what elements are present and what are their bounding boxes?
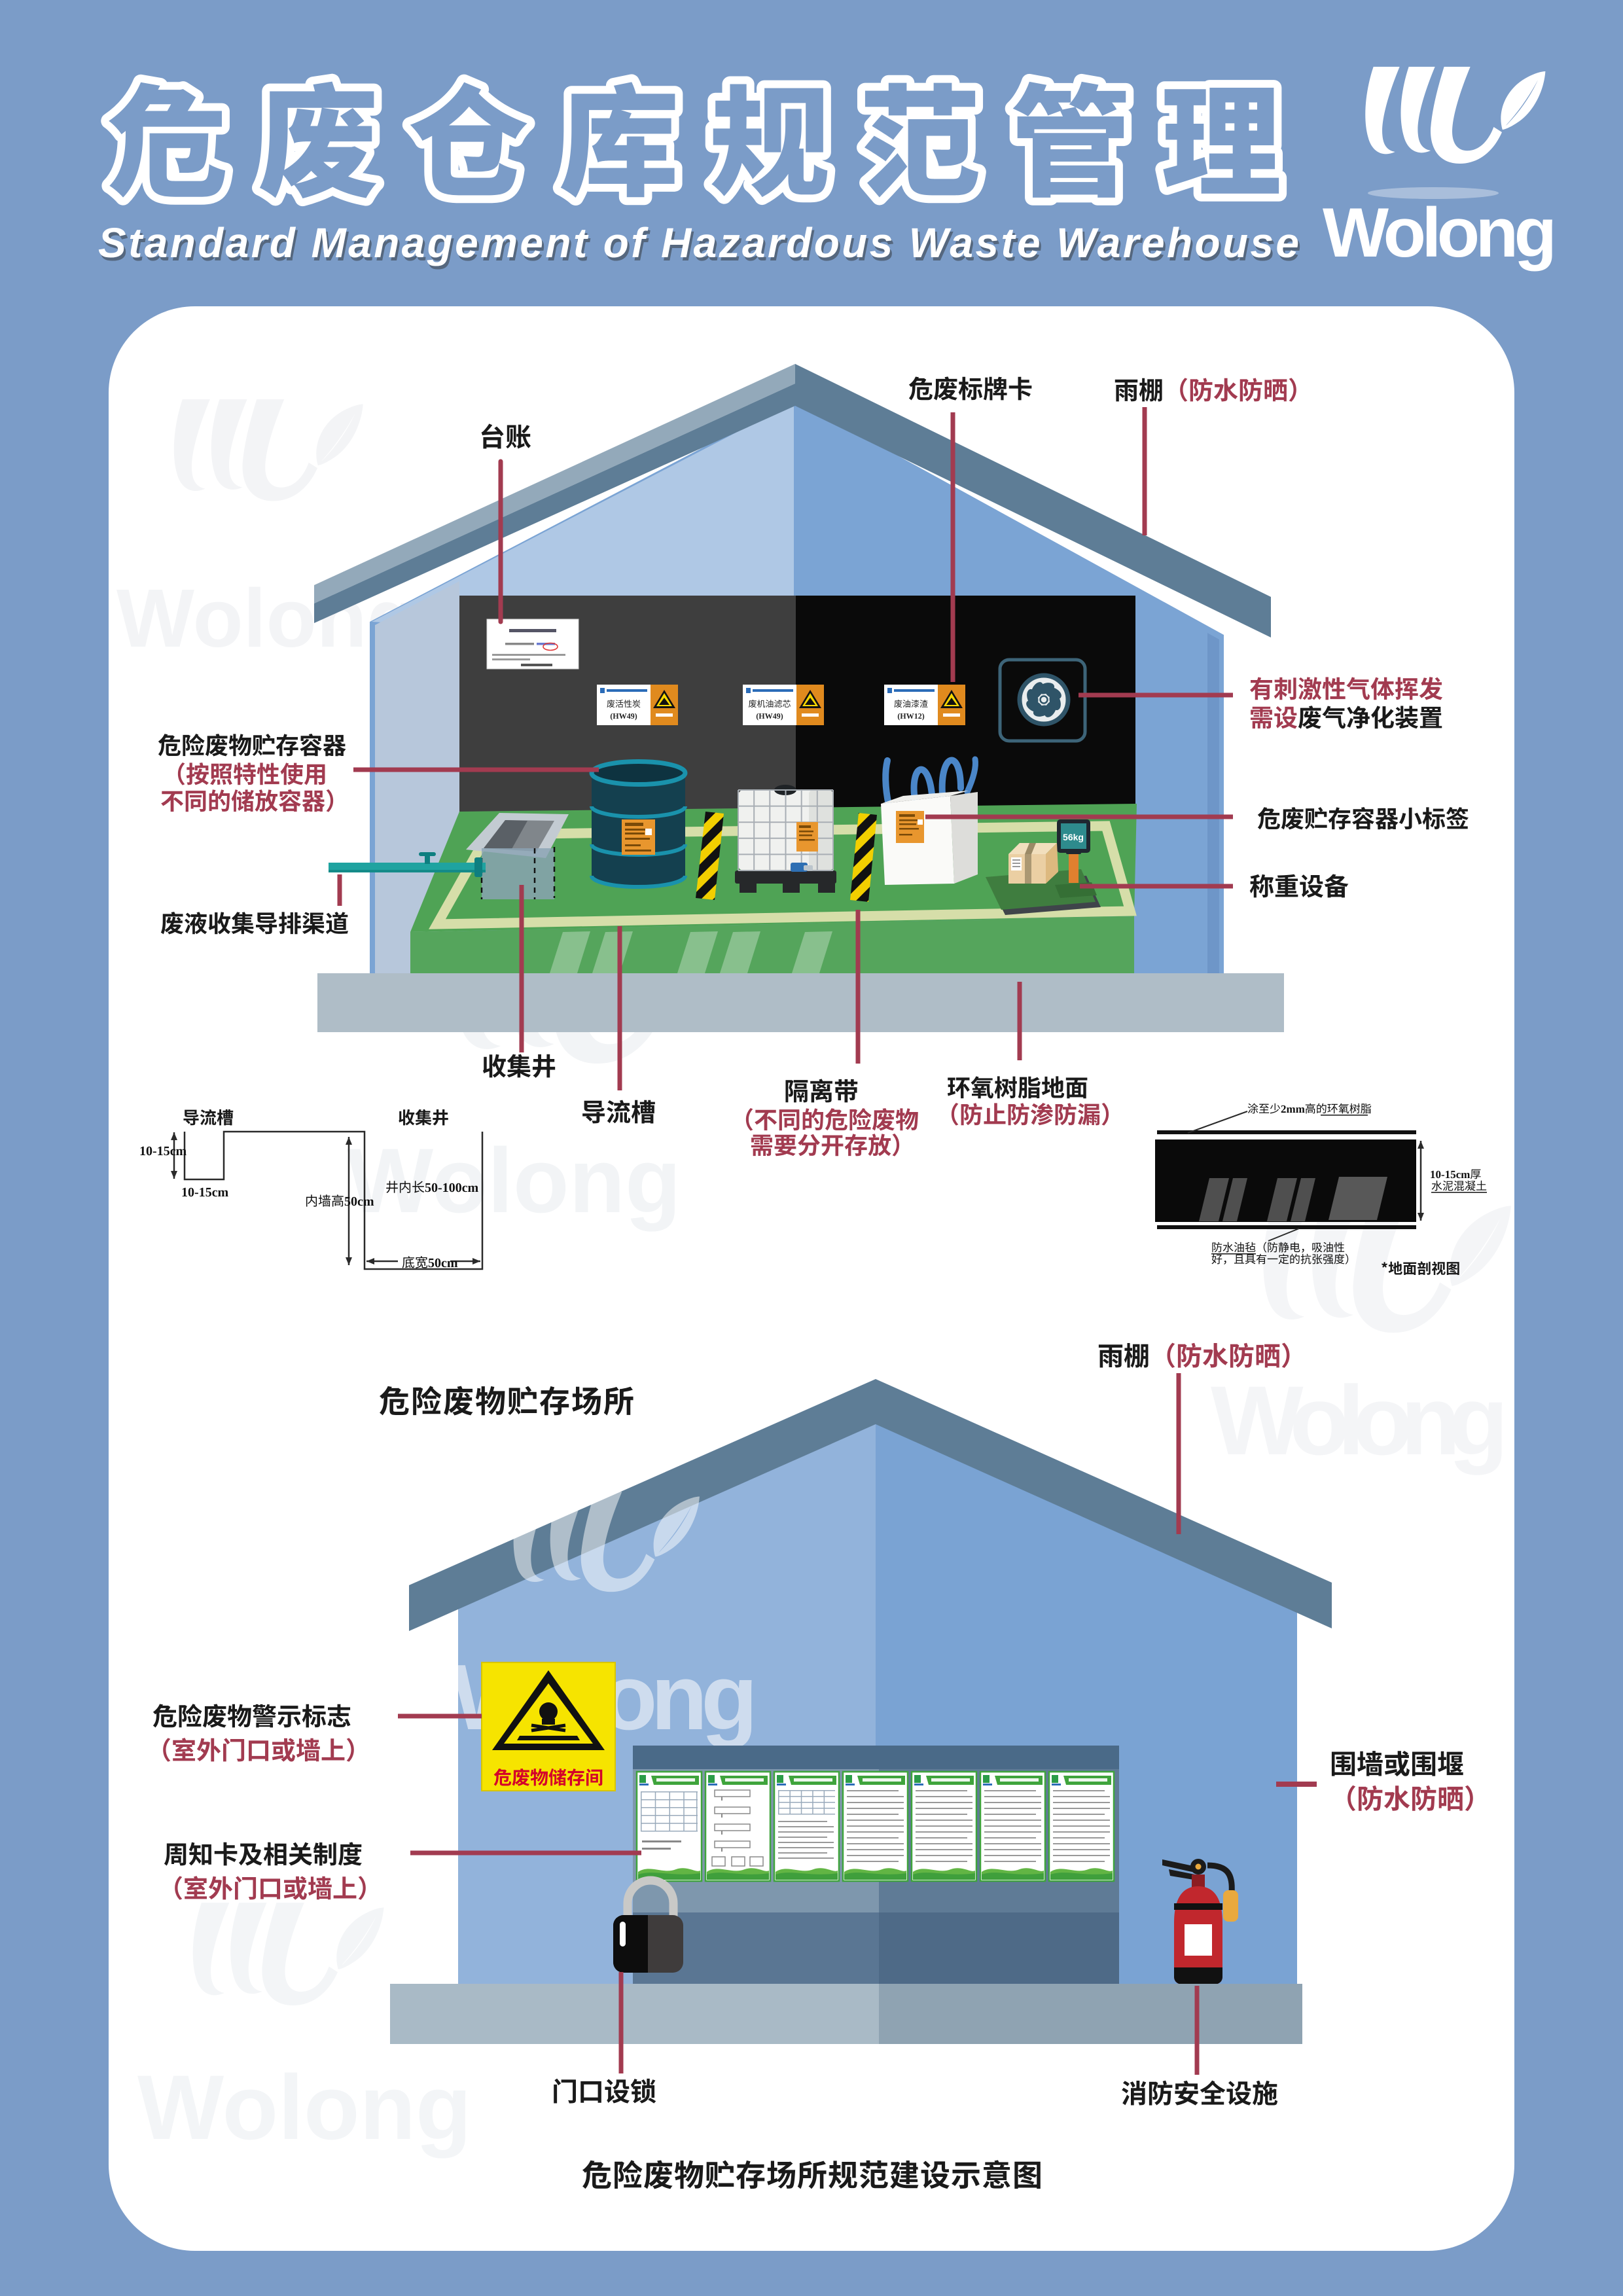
svg-text:Wolong: Wolong <box>347 1129 681 1232</box>
svg-text:Wolong: Wolong <box>137 2056 472 2159</box>
svg-text:Standard Management of Hazardo: Standard Management of Hazardous Waste W… <box>98 219 1299 266</box>
svg-text:Wolong: Wolong <box>1211 1365 1508 1475</box>
svg-text:Wolong: Wolong <box>1323 193 1557 272</box>
svg-text:56kg: 56kg <box>1063 832 1084 842</box>
